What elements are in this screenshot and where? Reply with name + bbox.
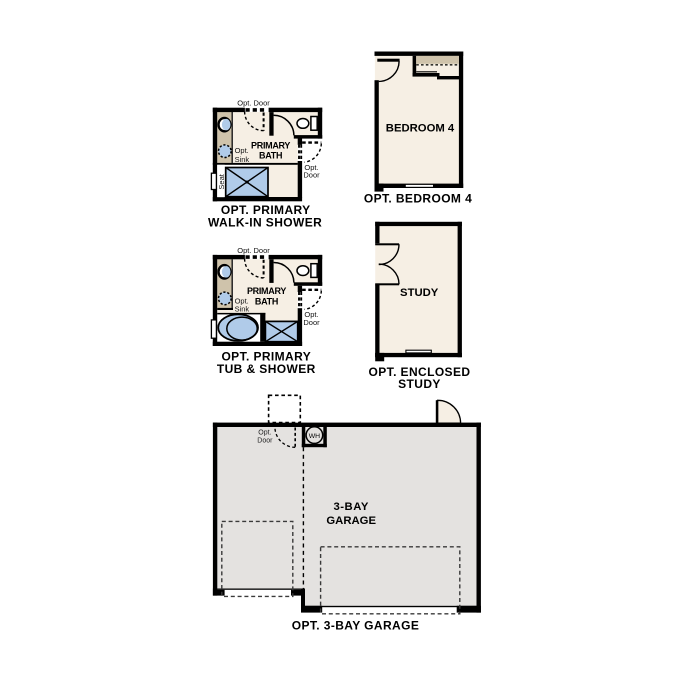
svg-text:Opt. Door: Opt. Door [237, 246, 270, 255]
svg-text:Door: Door [257, 438, 273, 445]
svg-text:3-BAY: 3-BAY [334, 501, 369, 513]
svg-text:STUDY: STUDY [400, 287, 439, 299]
svg-text:Door: Door [303, 318, 320, 327]
svg-text:Opt.: Opt. [258, 430, 271, 437]
svg-text:Door: Door [303, 171, 320, 180]
svg-text:WH: WH [309, 433, 320, 440]
svg-text:PRIMARY: PRIMARY [247, 286, 286, 296]
svg-text:Opt. Door: Opt. Door [237, 99, 270, 108]
svg-text:Sink: Sink [235, 305, 250, 314]
svg-text:BATH: BATH [259, 150, 282, 160]
svg-text:BATH: BATH [255, 296, 278, 306]
svg-text:WALK-IN SHOWER: WALK-IN SHOWER [208, 216, 322, 230]
svg-text:OPT. 3-BAY GARAGE: OPT. 3-BAY GARAGE [292, 619, 420, 633]
svg-text:Sink: Sink [235, 155, 250, 164]
svg-text:PRIMARY: PRIMARY [251, 140, 290, 150]
svg-text:TUB & SHOWER: TUB & SHOWER [217, 362, 316, 376]
svg-text:STUDY: STUDY [398, 377, 441, 391]
svg-text:GARAGE: GARAGE [326, 515, 376, 527]
svg-text:BEDROOM 4: BEDROOM 4 [386, 123, 455, 135]
svg-text:OPT. BEDROOM 4: OPT. BEDROOM 4 [364, 191, 472, 205]
